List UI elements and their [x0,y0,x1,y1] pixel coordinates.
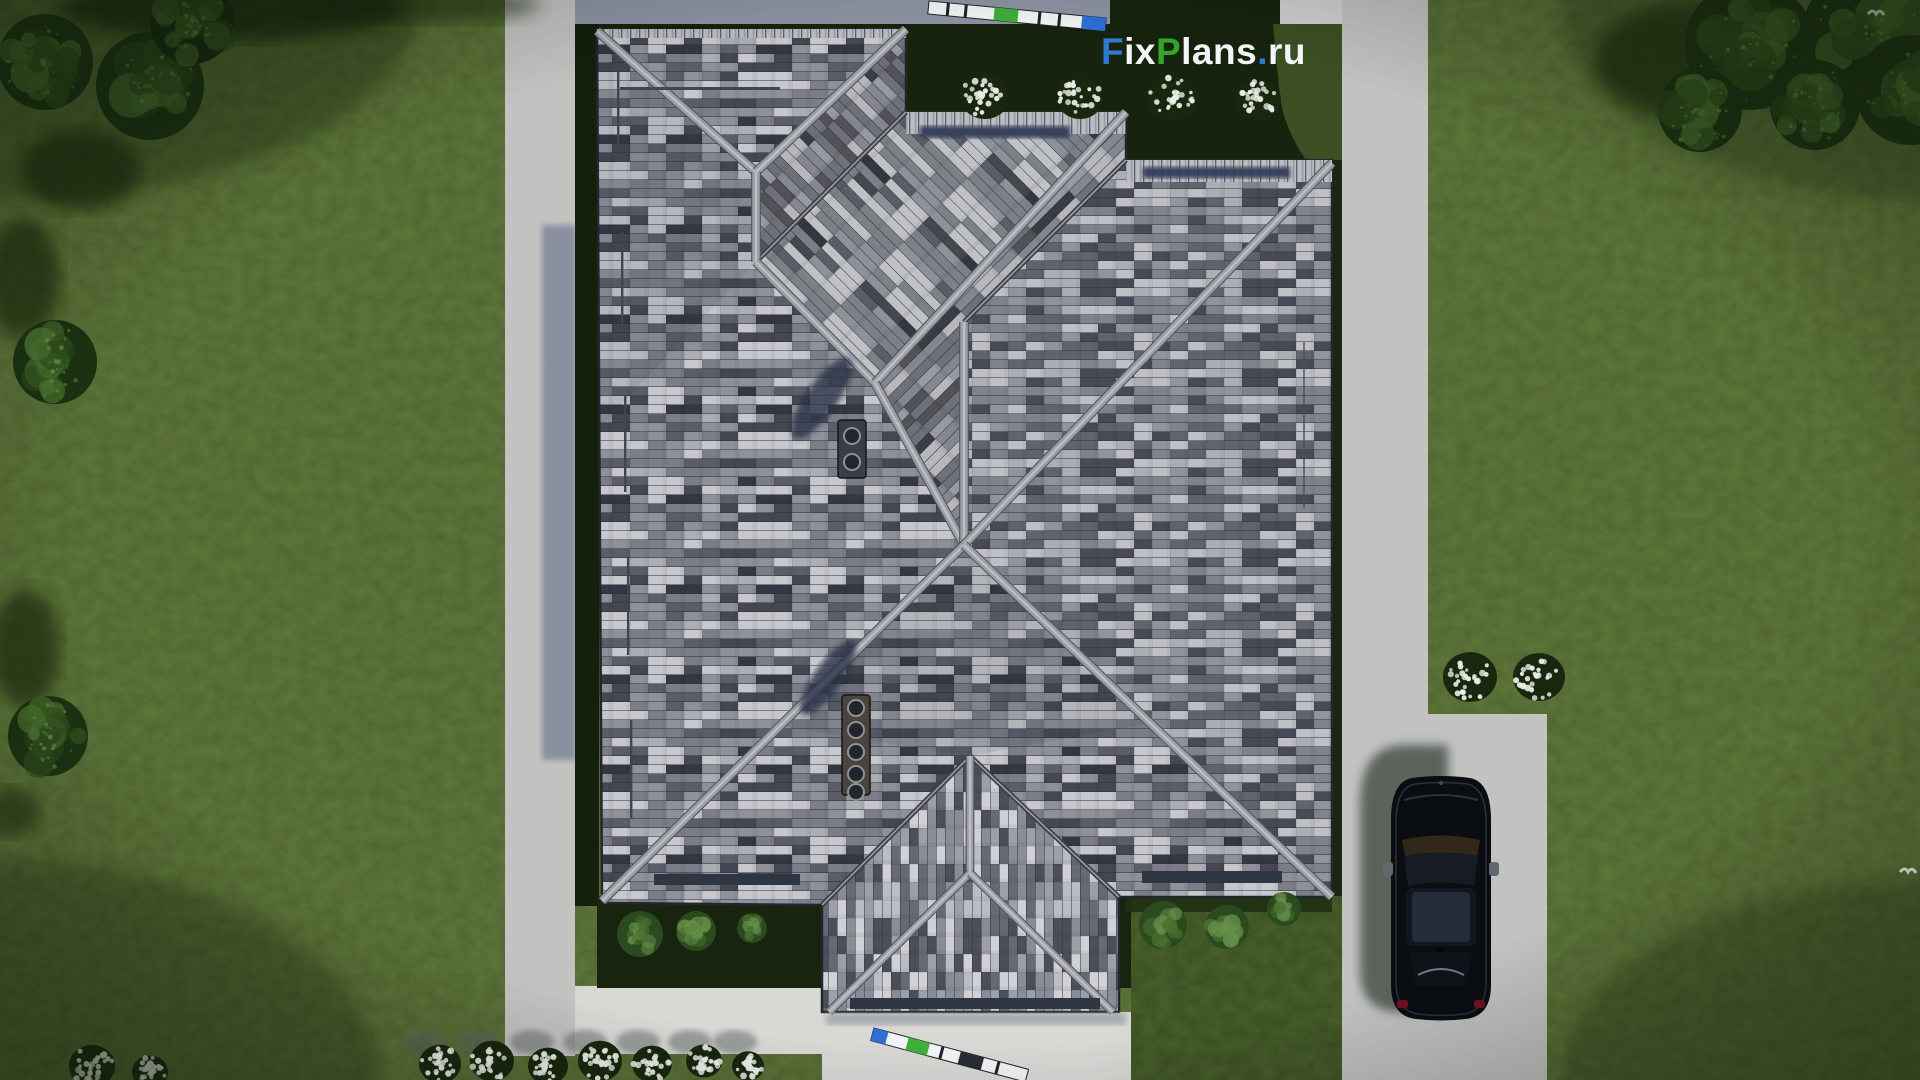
svg-text:FixPlans.ru: FixPlans.ru [1101,31,1306,72]
